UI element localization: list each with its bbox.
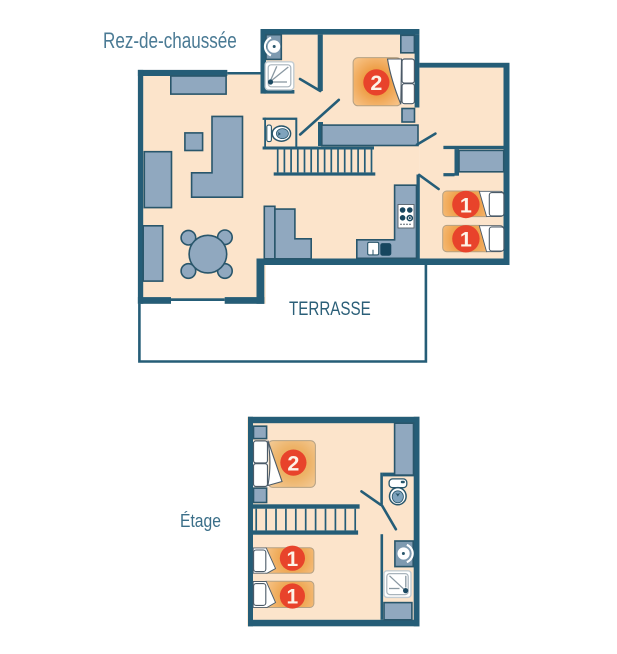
svg-text:1: 1 <box>460 193 472 217</box>
svg-text:2: 2 <box>287 451 299 475</box>
svg-text:2: 2 <box>370 71 382 95</box>
svg-text:1: 1 <box>287 548 299 571</box>
svg-text:1: 1 <box>287 586 299 609</box>
svg-text:1: 1 <box>460 228 472 252</box>
